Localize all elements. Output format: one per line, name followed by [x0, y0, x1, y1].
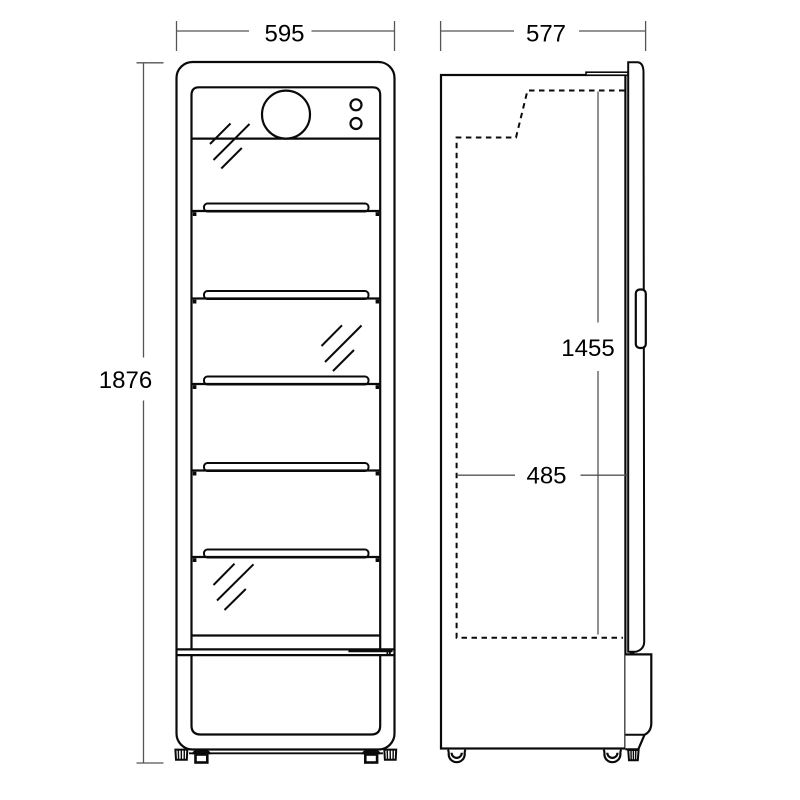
svg-text:1455: 1455 [561, 335, 614, 362]
svg-text:595: 595 [264, 21, 304, 48]
svg-text:577: 577 [526, 21, 566, 48]
svg-text:485: 485 [526, 463, 566, 490]
svg-text:1876: 1876 [99, 367, 152, 394]
